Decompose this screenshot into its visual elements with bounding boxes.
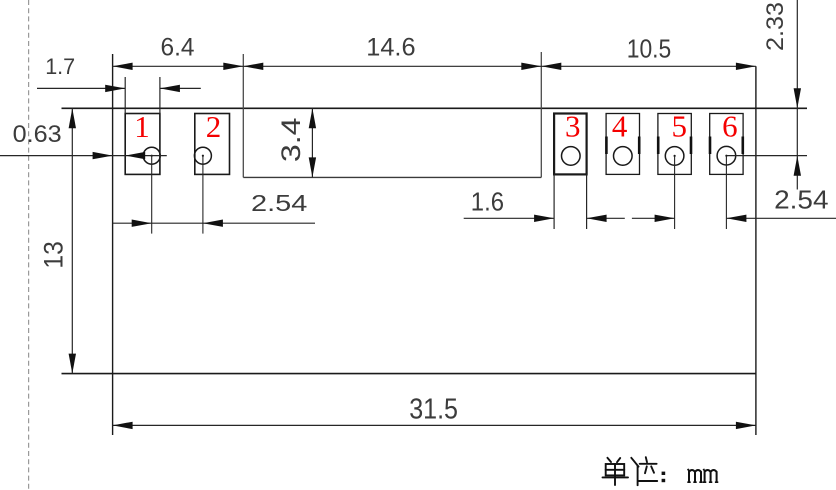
svg-text:4: 4 [612,109,628,144]
svg-text:1: 1 [134,109,150,144]
svg-text:2.54: 2.54 [774,185,828,215]
svg-text:10.5: 10.5 [627,34,672,64]
svg-text:6: 6 [722,109,738,144]
svg-text:1.7: 1.7 [45,54,75,79]
svg-text:2: 2 [206,109,222,144]
svg-text:6.4: 6.4 [161,34,195,62]
svg-text:1.6: 1.6 [471,187,504,217]
svg-text:3: 3 [565,109,581,144]
svg-text:0.63: 0.63 [13,121,62,148]
svg-text:13: 13 [39,241,69,268]
svg-text:5: 5 [671,109,687,144]
svg-text:31.5: 31.5 [409,394,458,426]
svg-text:2.54: 2.54 [251,190,308,216]
svg-text:3.4: 3.4 [276,117,306,162]
svg-text:2.33: 2.33 [762,2,789,51]
svg-text:14.6: 14.6 [366,34,415,62]
